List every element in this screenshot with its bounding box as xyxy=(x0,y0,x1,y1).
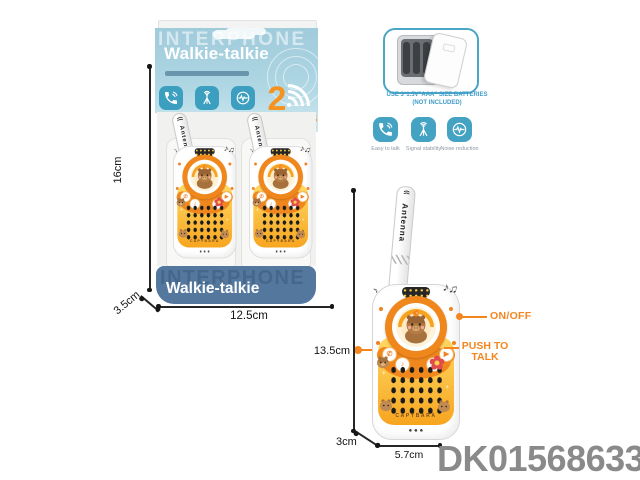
box-bottom-band: INTERPHONE Walkie-talkie xyxy=(156,266,316,304)
capybara-sticker xyxy=(379,398,393,412)
walkie-talkie-body: ♪♫ ♪ ++ xyxy=(173,146,236,258)
music-notes-icon: ♪♫ xyxy=(442,280,460,297)
on-off-label: ON/OFF xyxy=(490,310,531,322)
music-notes-icon: ♪♫ xyxy=(223,143,236,155)
capybara-sticker xyxy=(437,399,451,413)
packaging-box: INTERPHONE Walkie-talkie Easy to talk Si… xyxy=(155,26,318,304)
noise-icon xyxy=(447,117,472,142)
flower-sticker xyxy=(290,197,300,207)
music-notes-icon: ♪♫ xyxy=(299,143,312,155)
dimension-label-device-height: 13.5cm xyxy=(308,345,350,357)
music-note-icon: ♪ xyxy=(370,285,381,294)
microphone-holes xyxy=(275,250,287,254)
speaker-grille xyxy=(389,365,443,415)
product-code: DK01568633 xyxy=(437,438,640,480)
product-sheet: 16cm 3.5cm 12.5cm INTERPHONE Walkie-talk… xyxy=(0,0,640,480)
antenna-icon xyxy=(195,86,219,110)
dimension-label-box-depth: 3.5cm xyxy=(112,289,143,317)
dimension-line-box-width xyxy=(158,306,332,308)
side-ptt-stem xyxy=(361,349,372,351)
battery-slot xyxy=(413,42,420,74)
capybara-illustration xyxy=(266,163,295,192)
capybara-sticker xyxy=(296,229,306,239)
device-brand-text: CAPYBARA xyxy=(250,239,312,243)
device-brand-text: CAPYBARA xyxy=(174,239,236,243)
dimension-line-device-width xyxy=(377,445,440,447)
capybara-illustration xyxy=(396,307,436,347)
walkie-talkie-antenna: (( Antenna xyxy=(388,186,416,292)
capybara-sticker xyxy=(376,355,390,369)
capybara-sticker xyxy=(178,228,188,238)
antenna-label: Antenna xyxy=(397,203,409,243)
box-product-title: Walkie-talkie xyxy=(164,44,269,64)
tagline-text-placeholder xyxy=(165,71,249,76)
antenna-stripes xyxy=(391,254,409,264)
dimension-line-device-height xyxy=(353,190,355,431)
ptt-pointer-line xyxy=(444,347,459,349)
antenna-wave-icon: (( xyxy=(176,116,183,121)
on-off-pointer-line xyxy=(462,316,487,318)
feature-label: Noise reduction xyxy=(435,146,484,152)
battery-slot xyxy=(403,42,410,74)
push-to-talk-line2: TALK xyxy=(459,352,511,363)
speaker-grille xyxy=(261,204,300,240)
battery-note-line1: USE 3*1.5V"AAA" SIZE BATTERIES xyxy=(368,92,506,100)
battery-note-line2: (NOT INCLUDED) xyxy=(368,100,506,108)
walkie-talkie-large: ♪♫ ♪ ++ + xyxy=(372,284,460,440)
phone-icon xyxy=(159,86,183,110)
antenna-wave-icon: (( xyxy=(403,190,409,195)
capybara-sticker xyxy=(252,197,262,207)
push-to-talk-label: PUSH TO TALK xyxy=(459,341,511,363)
battery-note: USE 3*1.5V"AAA" SIZE BATTERIES (NOT INCL… xyxy=(368,92,506,107)
battery-info-box xyxy=(383,28,479,94)
wifi-arcs-icon xyxy=(286,84,308,108)
dimension-line-box-height xyxy=(149,66,151,290)
dimension-label-box-width: 12.5cm xyxy=(204,310,294,322)
flower-sticker xyxy=(429,355,445,371)
box-product-title: Walkie-talkie xyxy=(166,280,259,298)
antenna-icon xyxy=(411,117,436,142)
noise-icon xyxy=(231,86,255,110)
dimension-label-device-depth: 3cm xyxy=(336,436,357,448)
capybara-illustration xyxy=(190,163,219,192)
capybara-sticker xyxy=(254,228,264,238)
dimension-label-box-height: 16cm xyxy=(112,148,124,192)
capybara-sticker xyxy=(176,197,186,207)
device-brand-text: CAPYBARA xyxy=(373,413,459,419)
flower-sticker xyxy=(214,197,224,207)
walkie-talkie-body: ♪♫ ♪ ++ xyxy=(249,146,312,258)
cloud-decoration xyxy=(213,30,255,39)
capybara-sticker xyxy=(220,229,230,239)
channels-number: 2 xyxy=(268,84,287,114)
microphone-holes xyxy=(408,428,424,433)
dimension-label-device-width: 5.7cm xyxy=(391,449,427,461)
speaker-grille xyxy=(185,204,224,240)
phone-icon xyxy=(373,117,398,142)
microphone-holes xyxy=(199,250,211,254)
antenna-wave-icon: (( xyxy=(251,116,258,121)
blister-tray: (( Antenna (( Antenna ♪♫ ♪ ++ xyxy=(157,112,316,266)
